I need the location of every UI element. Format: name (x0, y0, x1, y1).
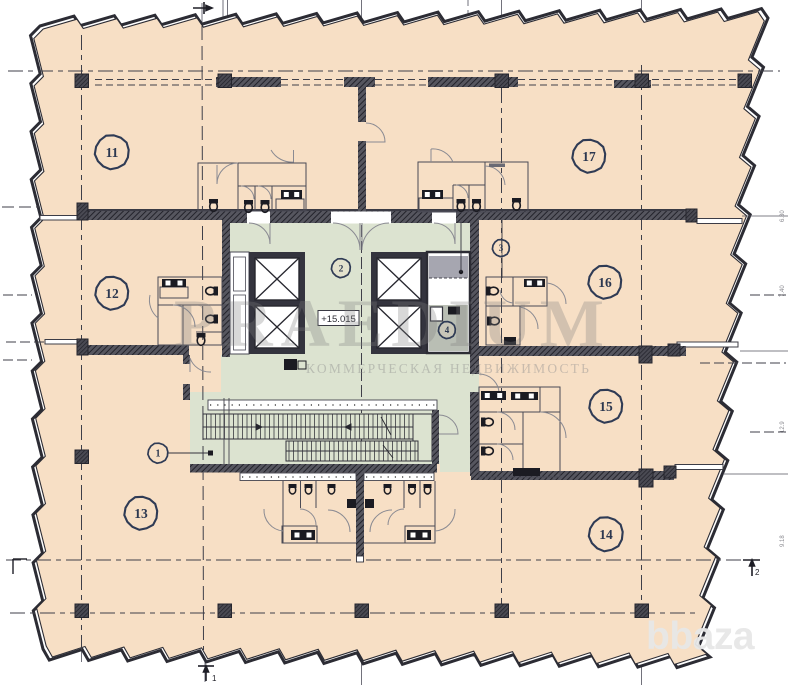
svg-text:14: 14 (599, 527, 613, 542)
svg-text:1: 1 (156, 449, 161, 460)
svg-text:13: 13 (134, 506, 148, 521)
svg-text:11: 11 (106, 145, 119, 160)
svg-text:PRAEDIUM: PRAEDIUM (174, 285, 612, 361)
svg-text:12: 12 (105, 286, 119, 301)
svg-text:17: 17 (582, 149, 596, 164)
svg-text:bbaza: bbaza (646, 615, 755, 658)
svg-text:1: 1 (212, 674, 217, 683)
svg-text:2: 2 (339, 264, 344, 274)
svg-text:15: 15 (599, 399, 613, 414)
svg-text:6.30: 6.30 (780, 210, 786, 222)
svg-text:3: 3 (499, 243, 504, 253)
svg-text:КОММЕРЧЕСКАЯ НЕДВИЖИМОСТЬ: КОММЕРЧЕСКАЯ НЕДВИЖИМОСТЬ (306, 361, 591, 376)
svg-text:7.40: 7.40 (780, 285, 786, 297)
svg-text:2: 2 (755, 568, 760, 577)
svg-text:9.18: 9.18 (780, 535, 786, 547)
svg-text:12.9: 12.9 (780, 421, 786, 433)
